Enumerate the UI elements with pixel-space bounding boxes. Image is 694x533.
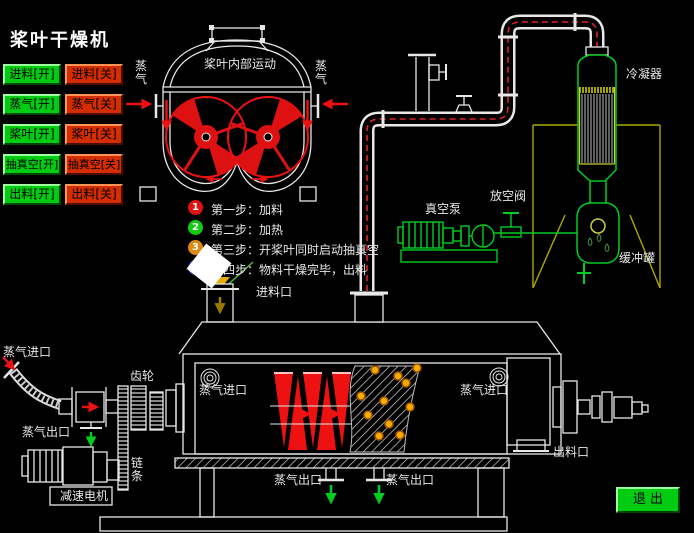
- machine-paddle-blades: [270, 372, 352, 450]
- material-region: [350, 364, 421, 452]
- vessel-caption: 桨叶内部运动: [204, 58, 276, 71]
- btn-steam-on[interactable]: 蒸气[开]: [3, 94, 61, 115]
- condenser-label: 冷凝器: [626, 68, 662, 81]
- jacket-steam-inlet-left-label: 蒸气进口: [199, 384, 247, 397]
- vacuum-pump: [398, 213, 577, 262]
- gear-label: 齿轮: [130, 370, 154, 383]
- gear-wheel-2: [150, 392, 163, 430]
- btn-discharge-on[interactable]: 出料[开]: [3, 184, 61, 205]
- vacuum-pump-label: 真空泵: [425, 203, 461, 216]
- exit-button[interactable]: 退 出: [616, 487, 680, 513]
- condenser: [578, 55, 616, 204]
- joint-steam-outlet-label: 蒸气出口: [22, 426, 70, 439]
- btn-discharge-off[interactable]: 出料[关]: [65, 184, 123, 205]
- discharge-outlet-label: 出料口: [553, 446, 589, 459]
- step-2-text: 第二步：加热: [211, 221, 283, 238]
- vapor-pipe: [350, 13, 608, 322]
- vessel-steam-label-left: 蒸气: [134, 60, 148, 86]
- pipe-valves: [408, 55, 472, 112]
- btn-paddle-on[interactable]: 桨叶[开]: [3, 124, 61, 145]
- step-1-text: 第一步：加料: [211, 201, 283, 218]
- chain-label: 链条: [130, 457, 144, 483]
- paddle-wheel-right: [228, 97, 308, 177]
- step-2-badge: 2: [188, 220, 203, 235]
- vessel-steam-label-right: 蒸气: [314, 60, 328, 86]
- bottom-steam-outlet-right-label: 蒸气出口: [386, 474, 434, 487]
- right-drive-shaft: [553, 381, 648, 433]
- paddle-wheel-left: [166, 97, 246, 177]
- gearbox: [63, 447, 93, 485]
- btn-paddle-off[interactable]: 桨叶[关]: [65, 124, 123, 145]
- bottom-steam-outlet-left-label: 蒸气出口: [274, 474, 322, 487]
- vent-valve-label: 放空阀: [490, 190, 526, 203]
- btn-steam-off[interactable]: 蒸气[关]: [65, 94, 123, 115]
- bottom-steam-ports: [318, 468, 392, 501]
- step-4-text: 第四步：物料干燥完毕，出料: [211, 261, 367, 278]
- jacket-steam-inlet-right-label: 蒸气进口: [460, 384, 508, 397]
- page-title: 桨叶干燥机: [10, 26, 110, 52]
- motor-body: [28, 450, 62, 482]
- btn-vacuum-off[interactable]: 抽真空[关]: [65, 154, 123, 175]
- paddle-dryer-hmi-screen: 桨叶干燥机 进料[开] 进料[关] 蒸气[开] 蒸气[关] 桨叶[开] 桨叶[关…: [0, 0, 694, 533]
- btn-feed-on[interactable]: 进料[开]: [3, 64, 61, 85]
- btn-vacuum-on[interactable]: 抽真空[开]: [3, 154, 61, 175]
- step-1-badge: 1: [188, 200, 203, 215]
- reducer-motor-label: 减速电机: [60, 490, 108, 503]
- vent-valve-body: [501, 227, 521, 237]
- hose-steam-inlet-label: 蒸气进口: [3, 346, 51, 359]
- gear-wheel: [131, 386, 146, 430]
- step-3-text: 第三步：开桨叶同时启动抽真空: [211, 241, 379, 258]
- btn-feed-off[interactable]: 进料[关]: [65, 64, 123, 85]
- feed-inlet-label: 进料口: [256, 286, 292, 299]
- buffer-tank-label: 缓冲罐: [619, 252, 655, 265]
- buffer-tank: [577, 203, 619, 284]
